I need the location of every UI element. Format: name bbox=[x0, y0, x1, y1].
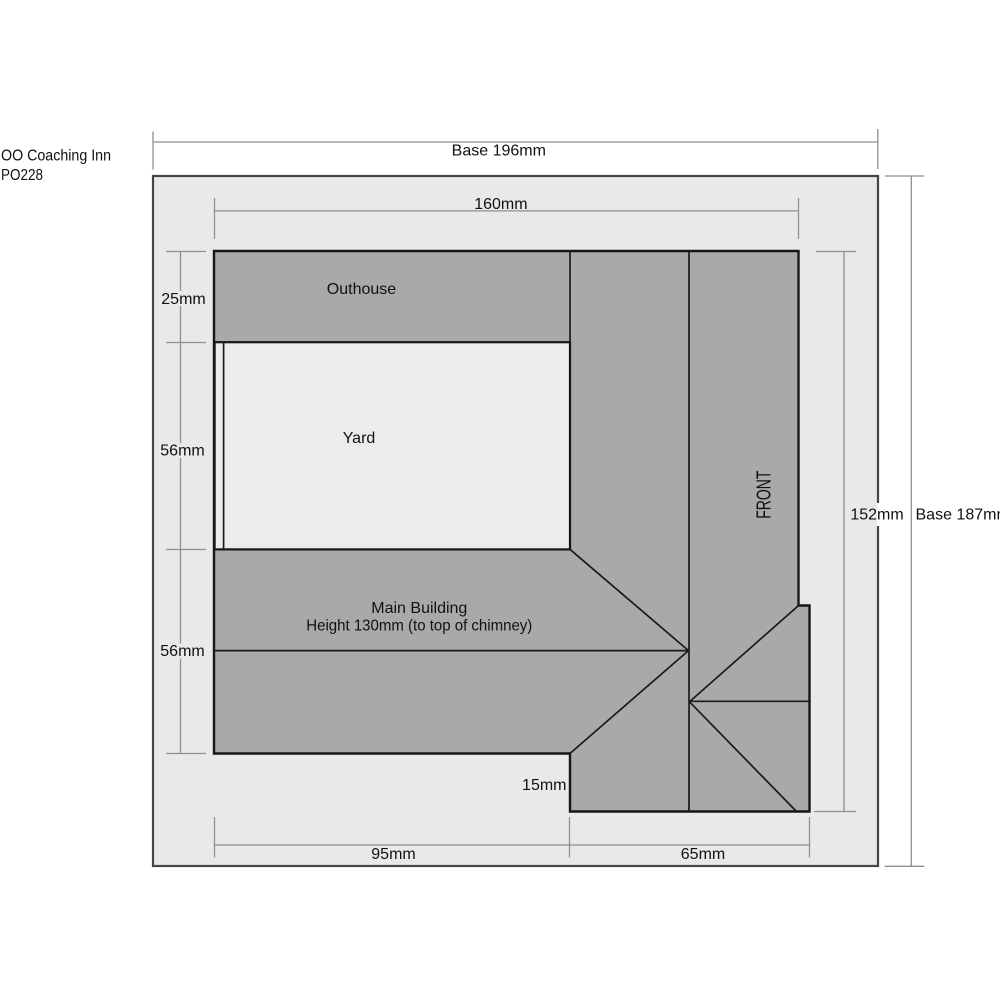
svg-text:Main Building: Main Building bbox=[371, 600, 467, 617]
svg-text:FRONT: FRONT bbox=[752, 470, 775, 519]
svg-text:56mm: 56mm bbox=[160, 443, 204, 460]
svg-text:95mm: 95mm bbox=[371, 846, 415, 863]
svg-text:15mm: 15mm bbox=[522, 777, 566, 794]
svg-text:Base 187mm: Base 187mm bbox=[916, 507, 1000, 524]
svg-text:Height 130mm (to top of chimne: Height 130mm (to top of chimney) bbox=[306, 618, 532, 635]
svg-text:PO228: PO228 bbox=[1, 167, 43, 184]
svg-text:25mm: 25mm bbox=[161, 291, 205, 308]
svg-text:65mm: 65mm bbox=[681, 846, 725, 863]
svg-text:OO Coaching Inn: OO Coaching Inn bbox=[1, 147, 111, 164]
svg-text:56mm: 56mm bbox=[160, 643, 204, 660]
svg-text:Outhouse: Outhouse bbox=[327, 281, 396, 298]
svg-text:Base 196mm: Base 196mm bbox=[452, 143, 546, 160]
svg-text:152mm: 152mm bbox=[850, 507, 903, 524]
svg-text:160mm: 160mm bbox=[474, 196, 527, 213]
svg-text:Yard: Yard bbox=[343, 430, 376, 447]
